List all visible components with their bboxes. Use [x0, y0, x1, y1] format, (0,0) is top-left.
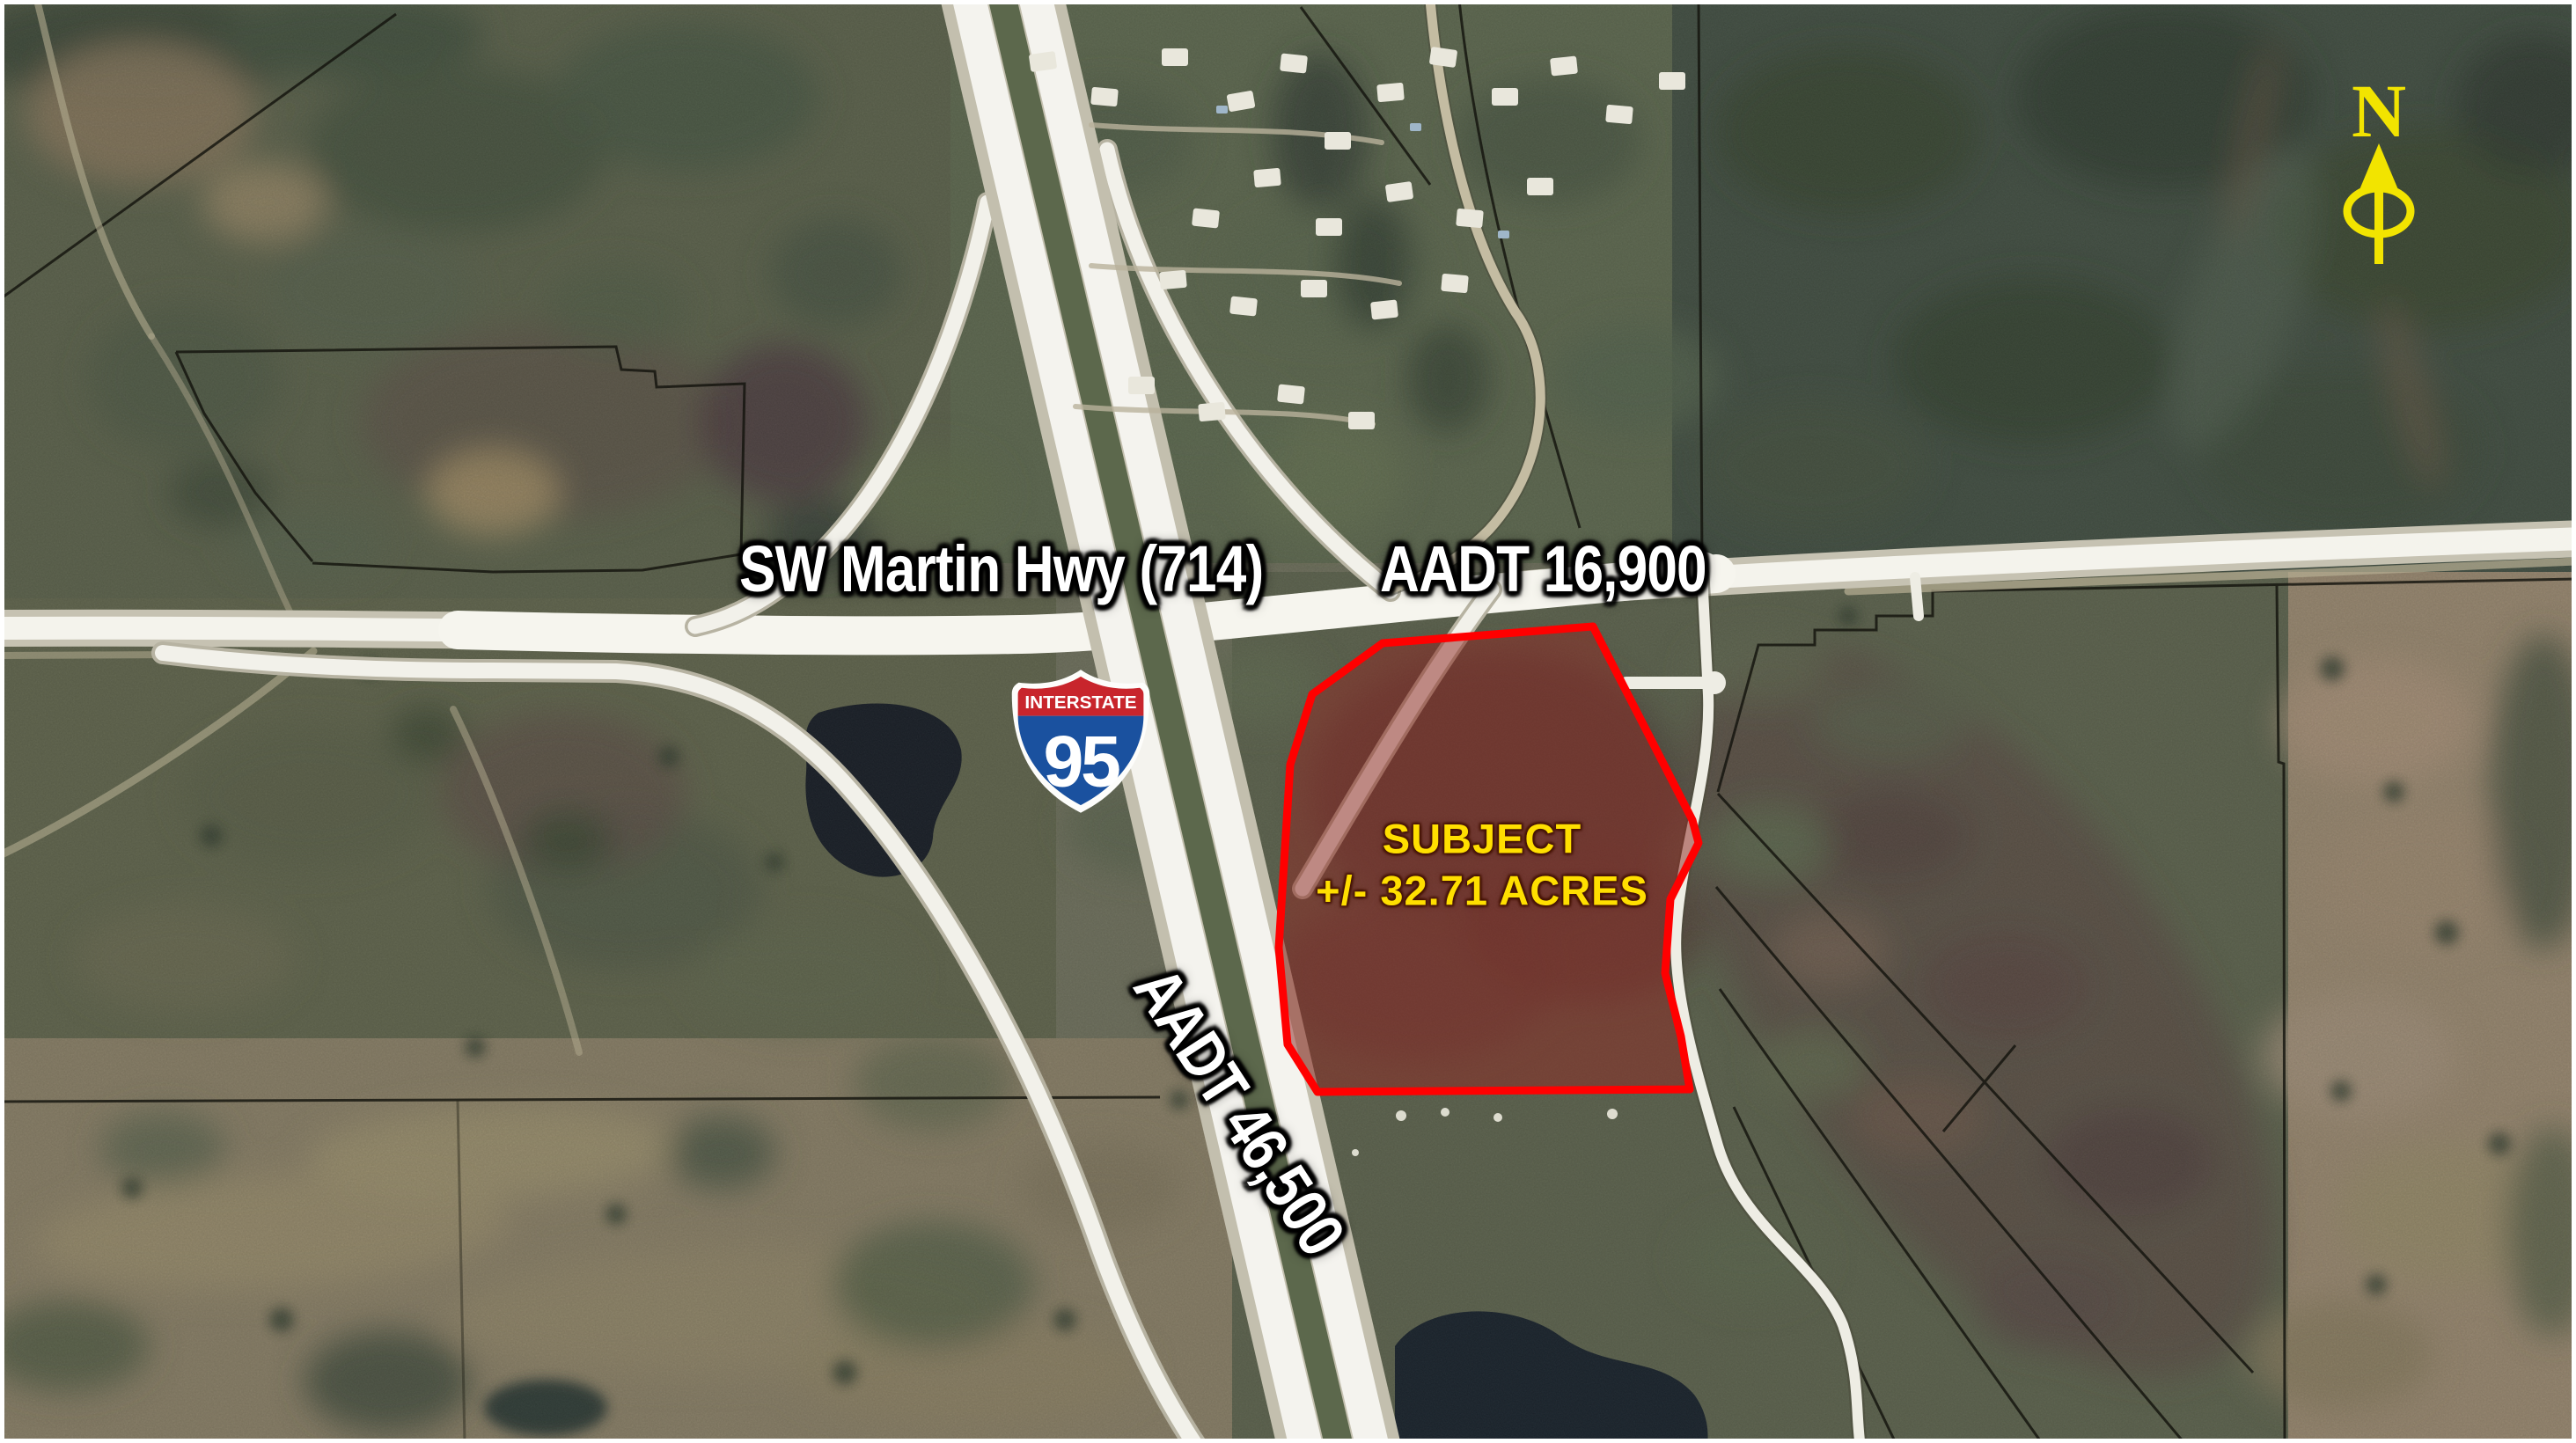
subject-acreage: +/- 32.71 ACRES [1316, 865, 1648, 917]
north-label: N [2352, 69, 2406, 153]
subject-title: SUBJECT [1316, 813, 1648, 865]
aerial-map-exhibit: INTERSTATE 95 N SW Martin Hwy (714) AADT… [0, 0, 2576, 1443]
sw-martin-hwy-label: SW Martin Hwy (714) [739, 537, 1263, 602]
aadt-16900-label: AADT 16,900 [1380, 537, 1706, 602]
subject-parcel-label: SUBJECT +/- 32.71 ACRES [1316, 813, 1648, 917]
interstate-shield-top-label: INTERSTATE [1024, 692, 1136, 713]
i95-shield-number: 95 [1044, 721, 1119, 802]
